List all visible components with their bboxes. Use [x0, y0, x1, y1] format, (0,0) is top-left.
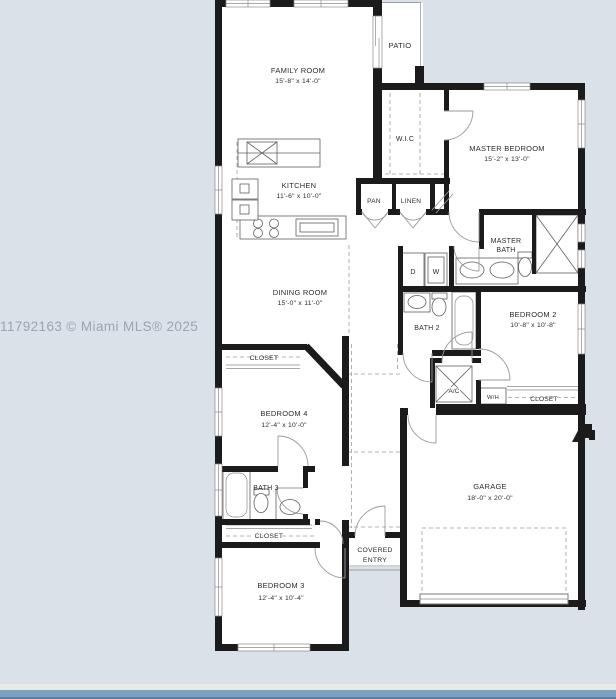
- patio-slider: [373, 16, 382, 68]
- master-bath-toilet: [518, 252, 532, 277]
- ac-label: A/C: [448, 388, 459, 395]
- dining-room-dims: 15'-0" x 11'-0": [277, 300, 322, 307]
- patio-label: PATIO: [389, 41, 412, 50]
- floor-plan: FAMILY ROOM 15'-8" x 14'-0" PATIO W.I.C …: [0, 0, 616, 699]
- closet-bedroom3-label: CLOSET: [255, 533, 284, 540]
- dining-room-label: DINING ROOM: [273, 288, 327, 297]
- kitchen-label: KITCHEN: [282, 181, 317, 190]
- master-bath-label-line2: BATH: [496, 247, 515, 254]
- closet-bedroom4-label: CLOSET: [250, 355, 279, 362]
- bedroom2-dims: 10'-8" x 10'-8": [510, 322, 556, 329]
- master-bedroom-label: MASTER BEDROOM: [469, 144, 545, 153]
- bedroom3-label: BEDROOM 3: [257, 581, 304, 590]
- washer-label: W: [433, 269, 440, 276]
- master-bath-label-line1: MASTER: [491, 238, 522, 245]
- family-room-dims: 15'-8" x 14'-0": [275, 78, 321, 85]
- covered-entry-label-line2: ENTRY: [363, 557, 387, 564]
- kitchen-dims: 11'-6" x 10'-0": [276, 193, 321, 200]
- water-heater-label: W/H: [487, 395, 499, 401]
- floor-plan-image: 11792163 © Miami MLS® 2025: [0, 0, 616, 699]
- family-room-label: FAMILY ROOM: [271, 66, 325, 75]
- wic-label: W.I.C: [396, 136, 414, 143]
- linen-label: LINEN: [401, 198, 421, 205]
- garage-label: GARAGE: [473, 482, 507, 491]
- bath3-label: BATH 3: [253, 485, 279, 492]
- master-bedroom-dims: 15'-2" x 13'-0": [484, 156, 530, 163]
- bedroom4-dims: 12'-4" x 10'-0": [261, 422, 307, 429]
- garage-door-panel: [420, 594, 568, 604]
- pantry-label: PAN: [367, 198, 381, 205]
- covered-entry-label-line1: COVERED: [357, 547, 392, 554]
- bath2-label: BATH 2: [414, 325, 440, 332]
- closet-bedroom2-label: CLOSET: [530, 396, 558, 403]
- garage-dims: 18'-0" x 20'-0": [467, 495, 513, 502]
- dryer-label: D: [410, 269, 415, 276]
- bedroom3-dims: 12'-4" x 10'-4": [258, 595, 304, 602]
- bedroom2-label: BEDROOM 2: [509, 310, 556, 319]
- master-bath-vanity: [456, 258, 518, 284]
- bottom-strip-blue: [0, 690, 616, 697]
- bedroom4-label: BEDROOM 4: [260, 409, 307, 418]
